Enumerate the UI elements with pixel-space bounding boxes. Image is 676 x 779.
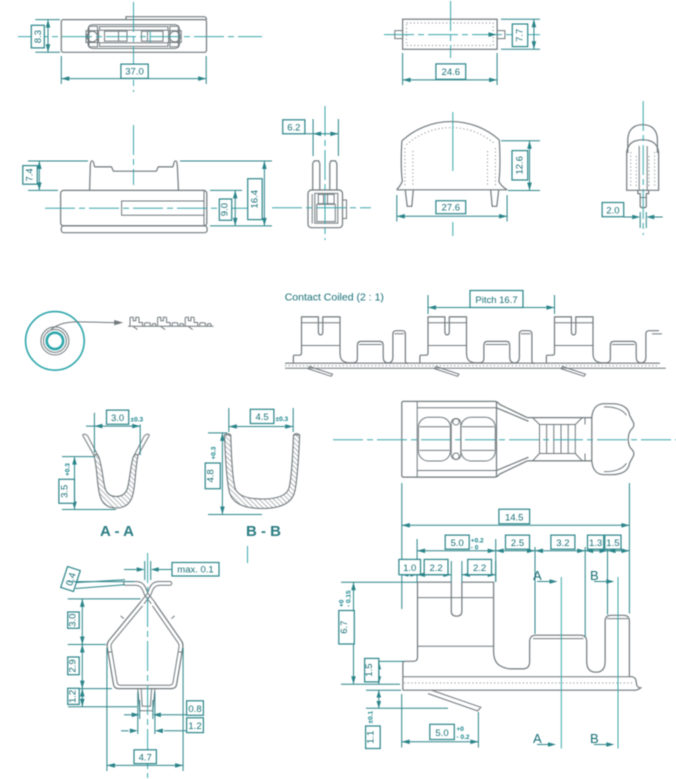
svg-text:±0.3: ±0.3: [276, 416, 289, 423]
svg-text:±0.1: ±0.1: [368, 711, 375, 724]
svg-text:Pitch 16.7: Pitch 16.7: [475, 295, 517, 306]
svg-text:- 0.15: - 0.15: [346, 590, 353, 607]
svg-text:A: A: [533, 731, 542, 746]
svg-text:4.8: 4.8: [205, 469, 216, 482]
svg-text:+0.3: +0.3: [65, 463, 72, 476]
svg-text:B: B: [590, 568, 599, 583]
svg-text:+0: +0: [339, 599, 346, 607]
svg-text:+0.2: +0.2: [471, 538, 484, 545]
svg-text:16.4: 16.4: [249, 190, 260, 209]
svg-text:- 0.2: - 0.2: [457, 734, 470, 741]
svg-text:1.5: 1.5: [606, 538, 619, 549]
svg-text:1.2: 1.2: [67, 690, 78, 703]
svg-text:2.2: 2.2: [473, 563, 486, 574]
svg-text:1.3: 1.3: [589, 538, 602, 549]
svg-text:27.6: 27.6: [442, 203, 461, 214]
svg-text:2.5: 2.5: [511, 538, 524, 549]
svg-text:1.5: 1.5: [364, 663, 375, 676]
svg-text:4.7: 4.7: [139, 752, 152, 763]
svg-text:A: A: [533, 568, 542, 583]
svg-text:9.0: 9.0: [220, 203, 231, 216]
svg-text:A - A: A - A: [100, 523, 134, 540]
svg-text:3.0: 3.0: [67, 614, 78, 627]
svg-text:5.0: 5.0: [435, 728, 448, 739]
svg-text:B - B: B - B: [246, 523, 281, 540]
svg-text:+0: +0: [457, 726, 465, 733]
svg-text:7.7: 7.7: [515, 29, 526, 42]
svg-text:2.9: 2.9: [67, 659, 78, 672]
svg-text:max. 0.1: max. 0.1: [177, 565, 213, 576]
svg-text:5.0: 5.0: [451, 538, 464, 549]
svg-text:6.2: 6.2: [287, 122, 300, 133]
svg-text:2.0: 2.0: [606, 205, 619, 216]
svg-text:8.3: 8.3: [33, 30, 44, 43]
svg-text:1.2: 1.2: [188, 721, 201, 732]
svg-text:1.1: 1.1: [365, 731, 376, 744]
svg-text:7.4: 7.4: [24, 168, 35, 181]
svg-text:1.0: 1.0: [403, 563, 416, 574]
svg-text:14.5: 14.5: [505, 512, 524, 523]
svg-text:24.6: 24.6: [442, 67, 461, 78]
svg-text:3.5: 3.5: [59, 485, 70, 498]
svg-text:Contact Coiled (2 : 1): Contact Coiled (2 : 1): [285, 292, 384, 304]
svg-text:6.7: 6.7: [339, 621, 350, 634]
svg-text:B: B: [590, 731, 599, 746]
svg-text:4.5: 4.5: [255, 412, 268, 423]
svg-text:±0.3: ±0.3: [131, 417, 144, 424]
svg-text:- 0: - 0: [471, 545, 479, 552]
svg-text:+0.3: +0.3: [210, 446, 217, 459]
svg-text:0.8: 0.8: [188, 704, 201, 715]
svg-text:3.0: 3.0: [111, 413, 124, 424]
svg-text:37.0: 37.0: [125, 67, 144, 78]
svg-text:2.2: 2.2: [429, 563, 442, 574]
svg-text:3.2: 3.2: [556, 538, 569, 549]
svg-text:12.6: 12.6: [514, 156, 525, 175]
